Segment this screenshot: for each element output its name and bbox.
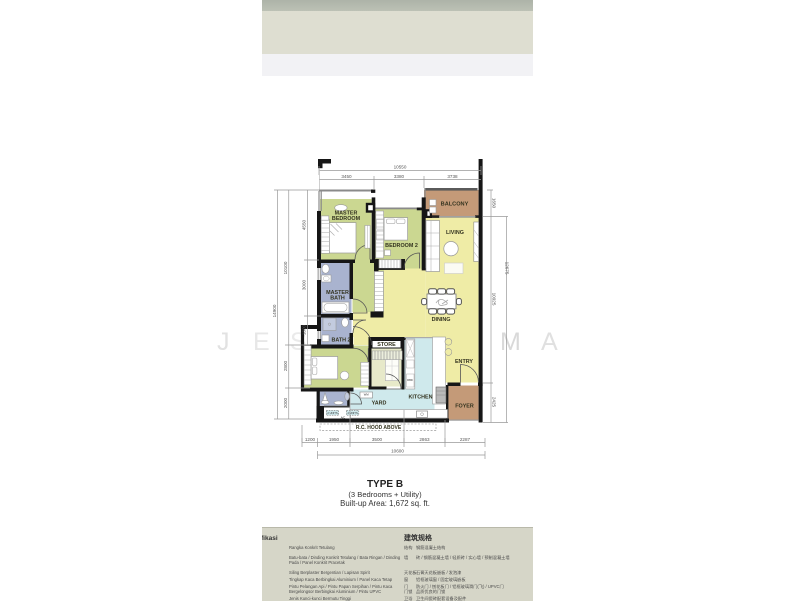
svg-text:DINING: DINING (432, 317, 451, 323)
svg-text:WM: WM (364, 393, 370, 397)
svg-text:BATH 2: BATH 2 (331, 338, 350, 344)
svg-text:2287: 2287 (460, 437, 471, 442)
svg-text:FOYER: FOYER (455, 404, 474, 410)
svg-text:YARD: YARD (372, 401, 387, 407)
svg-text:2425: 2425 (492, 397, 497, 408)
svg-text:3500: 3500 (372, 437, 383, 442)
svg-text:BEDROOM: BEDROOM (332, 216, 361, 222)
svg-text:10600: 10600 (391, 449, 404, 454)
svg-text:10925: 10925 (492, 293, 497, 306)
svg-text:2 UNITS: 2 UNITS (347, 411, 358, 415)
svg-text:BALCONY: BALCONY (441, 202, 469, 208)
svg-text:BATH: BATH (330, 296, 345, 302)
svg-text:3380: 3380 (394, 174, 405, 179)
svg-text:A/C: A/C (341, 416, 346, 420)
svg-text:2000: 2000 (283, 397, 288, 408)
svg-text:2 UNITS: 2 UNITS (327, 411, 338, 415)
svg-text:BEDROOM 2: BEDROOM 2 (385, 243, 418, 249)
svg-text:KITCHEN: KITCHEN (409, 395, 433, 401)
svg-text:1800: 1800 (302, 324, 307, 335)
svg-text:1200: 1200 (305, 437, 316, 442)
svg-text:3450: 3450 (341, 174, 352, 179)
svg-text:14900: 14900 (272, 304, 277, 317)
svg-text:4550: 4550 (302, 219, 307, 230)
svg-text:R.C. HOOD ABOVE: R.C. HOOD ABOVE (356, 425, 402, 431)
svg-text:10550: 10550 (394, 165, 407, 170)
svg-text:1950: 1950 (329, 437, 340, 442)
svg-text:STORE: STORE (377, 342, 396, 348)
svg-text:3738: 3738 (447, 174, 458, 179)
svg-text:10100: 10100 (283, 261, 288, 274)
svg-text:LIVING: LIVING (446, 230, 464, 236)
svg-text:2800: 2800 (283, 360, 288, 371)
svg-text:ENTRY: ENTRY (455, 359, 473, 365)
svg-text:RBD: RBD (407, 378, 413, 382)
svg-text:3000: 3000 (302, 279, 307, 290)
svg-text:1650: 1650 (492, 198, 497, 209)
svg-text:2863: 2863 (419, 437, 430, 442)
svg-text:12675: 12675 (505, 262, 510, 275)
